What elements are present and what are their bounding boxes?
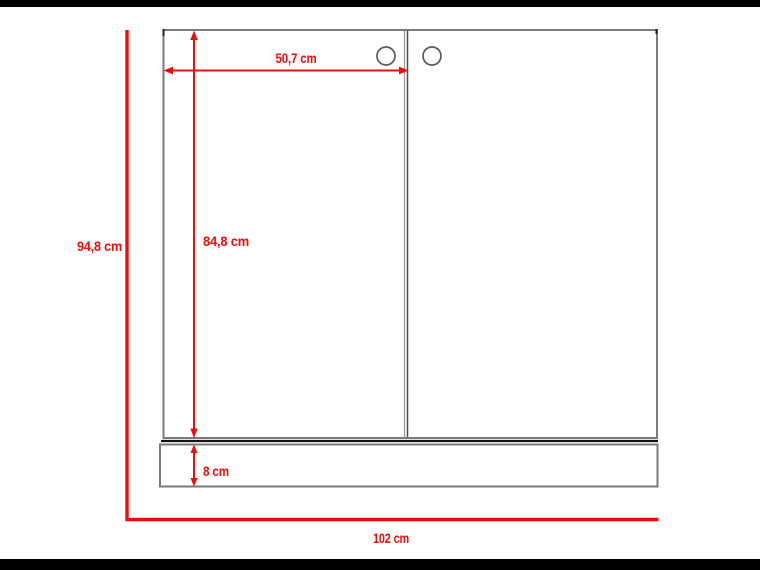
door-width-label: 50,7 cm	[276, 50, 317, 66]
dimension-drawing-page: 94,8 cm 84,8 cm 50,7 cm 8 cm 102 cm	[0, 0, 760, 570]
door-height-label: 84,8 cm	[203, 233, 249, 249]
overall-height-label: 94,8 cm	[77, 238, 122, 254]
letterbox-top-bar	[0, 0, 760, 7]
cabinet-outline	[160, 29, 658, 487]
plinth-height-label: 8 cm	[203, 463, 229, 479]
top-left-corner-tick	[163, 29, 165, 36]
right-door-knob	[423, 47, 441, 65]
top-right-corner-tick	[656, 29, 658, 34]
overall-width-label: 102 cm	[373, 530, 409, 546]
plinth-base	[160, 445, 658, 487]
cabinet-dimension-diagram: 94,8 cm 84,8 cm 50,7 cm 8 cm 102 cm	[0, 0, 760, 570]
letterbox-bottom-bar	[0, 559, 760, 570]
left-door-knob	[377, 47, 395, 65]
